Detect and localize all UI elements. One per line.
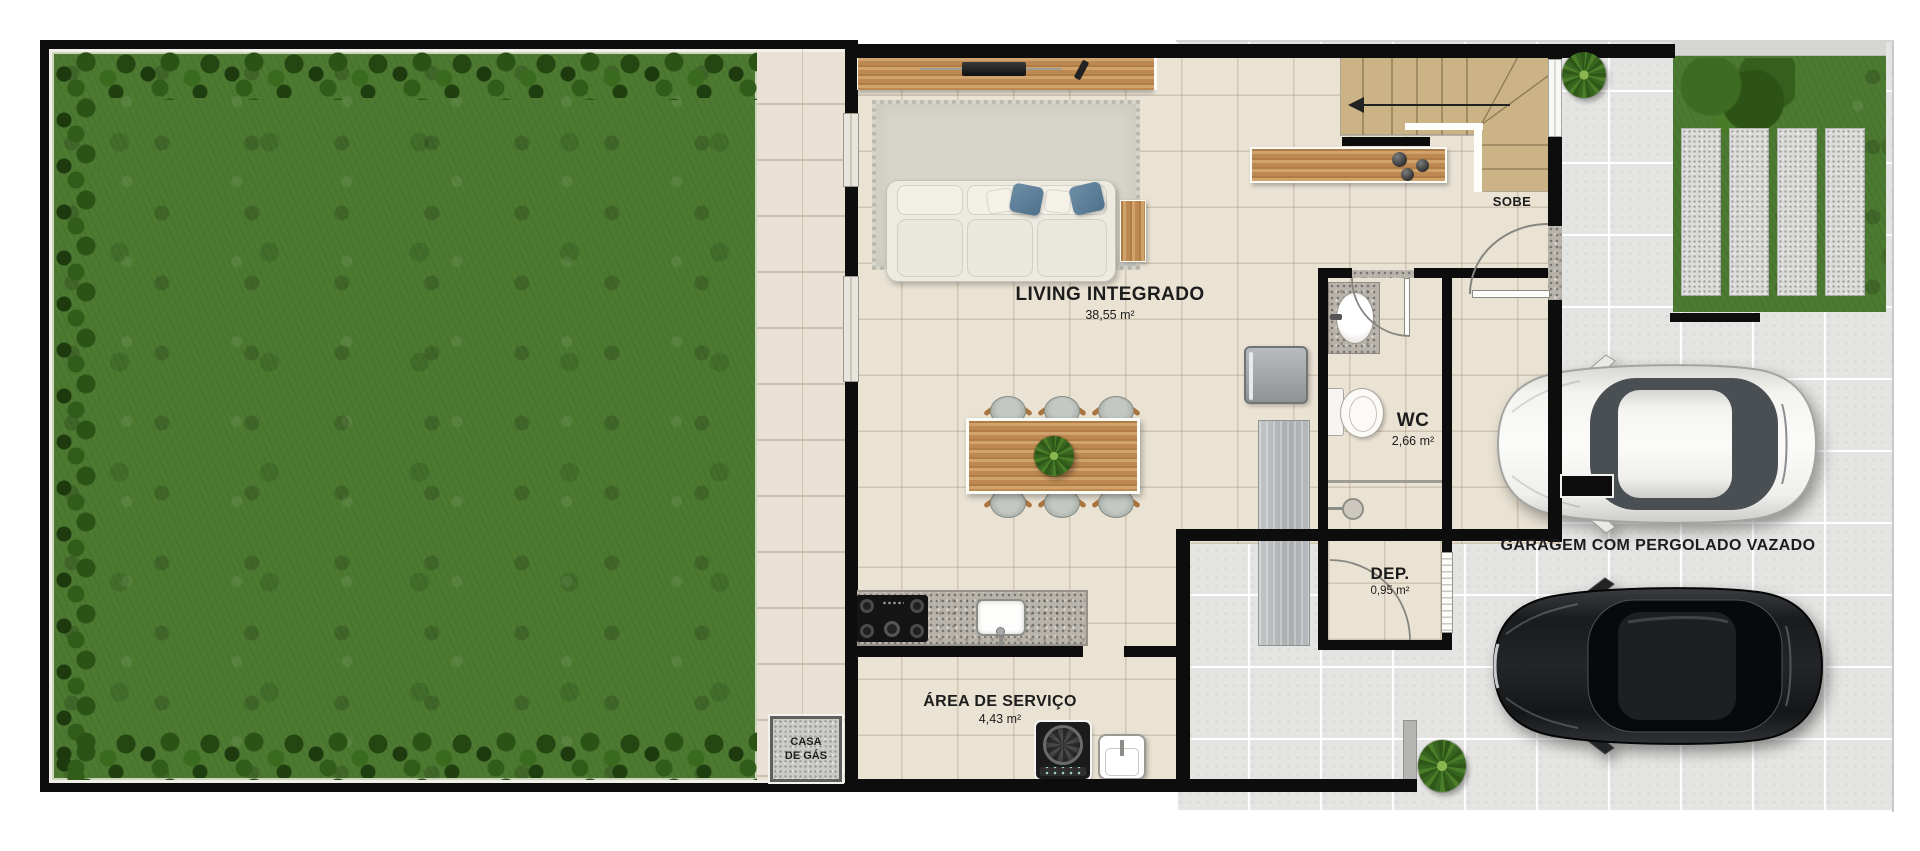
driveway-edge-wall <box>1670 313 1760 322</box>
sofa-seat-cushion <box>967 219 1033 277</box>
window <box>843 113 859 187</box>
burner <box>910 624 924 638</box>
decor-bowl <box>1401 168 1414 181</box>
garage-plant-bottom <box>1418 740 1466 792</box>
driveway-grass <box>1673 56 1886 312</box>
dep-label: DEP. 0,95 m² <box>1340 564 1440 599</box>
fridge <box>1244 346 1308 404</box>
wc-wall-north-a <box>1318 268 1352 278</box>
laundry-sink <box>1098 734 1146 780</box>
tv <box>962 62 1026 76</box>
service-name: ÁREA DE SERVIÇO <box>910 692 1090 711</box>
wc-wall-east <box>1442 268 1452 542</box>
shower-drain <box>1342 498 1364 520</box>
sofa <box>886 180 1116 282</box>
throw-pillow-white <box>1044 189 1073 215</box>
living-name: LIVING INTEGRADO <box>1015 284 1205 307</box>
entrance-door-arc <box>1470 224 1550 294</box>
wc-name: WC <box>1368 410 1458 433</box>
washing-machine <box>1036 722 1090 779</box>
driveway-sidewalk <box>1673 40 1886 56</box>
dep-wall-south <box>1318 640 1452 650</box>
burner <box>860 599 874 613</box>
driveway-bush <box>1675 58 1795 136</box>
paver-strip <box>1825 128 1865 296</box>
hedge-bottom <box>52 732 757 780</box>
garage-plant-top <box>1562 52 1606 98</box>
wc-label: WC 2,66 m² <box>1368 410 1458 449</box>
garden-plot <box>40 40 858 792</box>
wc-door-arc <box>1352 278 1410 336</box>
black-car <box>1478 574 1838 758</box>
paver-strip <box>1729 128 1769 296</box>
decor-bowl <box>1416 159 1429 172</box>
service-label: ÁREA DE SERVIÇO 4,43 m² <box>910 692 1090 727</box>
wall-service-east <box>1176 529 1190 792</box>
window <box>843 276 859 382</box>
wc-wall-west <box>1318 268 1328 542</box>
garden-walkway <box>757 49 849 783</box>
dep-louver-door <box>1441 552 1453 633</box>
throw-pillow-blue <box>1009 182 1045 216</box>
wc-area: 2,66 m² <box>1368 434 1458 449</box>
cooktop <box>856 595 928 642</box>
shower-divider <box>1328 480 1442 483</box>
decor-bowl <box>1392 152 1407 167</box>
sobe-text: SOBE <box>1472 194 1552 210</box>
stairs-label: SOBE <box>1472 194 1552 210</box>
dep-area: 0,95 m² <box>1340 585 1440 599</box>
washer-panel <box>1040 767 1086 776</box>
pergola-anchor-wall <box>1562 476 1612 496</box>
living-area: 38,55 m² <box>1015 308 1205 323</box>
garage-label: GARAGEM COM PERGOLADO VAZADO <box>1448 536 1868 555</box>
wall-kitchen-service-b <box>1124 646 1178 657</box>
living-half-wall <box>1342 137 1430 146</box>
wc-basin-faucet <box>1330 314 1342 320</box>
side-table <box>1120 200 1146 262</box>
shower-drain-arm <box>1328 507 1342 510</box>
wall-bottom <box>845 779 1417 792</box>
dep-name: DEP. <box>1340 564 1440 584</box>
floor-plan: SOBE <box>0 0 1920 851</box>
sofa-back-cushion <box>897 185 963 215</box>
hedge-left <box>52 52 100 780</box>
paver-strip <box>1681 128 1721 296</box>
gas-box-line1: CASA <box>790 735 821 749</box>
burner <box>860 624 874 638</box>
fridge-handle <box>1249 352 1253 400</box>
hedge-top <box>52 52 757 100</box>
laundry-faucet <box>1120 740 1124 756</box>
washer-drum <box>1043 725 1083 765</box>
garage-name: GARAGEM COM PERGOLADO VAZADO <box>1448 536 1868 555</box>
dep-wall-west <box>1318 542 1328 650</box>
gas-box: CASA DE GÁS <box>770 716 842 782</box>
paver-strip <box>1777 128 1817 296</box>
sofa-seat-cushion <box>1037 219 1107 277</box>
garage-pillar <box>1403 720 1417 780</box>
cooktop-controls <box>882 601 904 605</box>
wall-kitchen-service-a <box>845 646 1083 657</box>
living-label: LIVING INTEGRADO 38,55 m² <box>1015 284 1205 323</box>
service-area: 4,43 m² <box>910 712 1090 727</box>
burner <box>884 621 900 637</box>
wc-door-threshold <box>1352 270 1414 278</box>
kitchen-faucet-knob <box>996 627 1005 636</box>
table-centerpiece-plant <box>1034 436 1074 476</box>
gas-box-line2: DE GÁS <box>785 749 827 763</box>
stair-exit-door <box>1548 59 1562 137</box>
white-car <box>1482 350 1830 538</box>
sofa-seat-cushion <box>897 219 963 277</box>
garden-lawn <box>52 52 757 780</box>
entrance-threshold <box>1548 226 1562 300</box>
burner <box>910 599 924 613</box>
dep-wall-east-b <box>1442 633 1452 650</box>
